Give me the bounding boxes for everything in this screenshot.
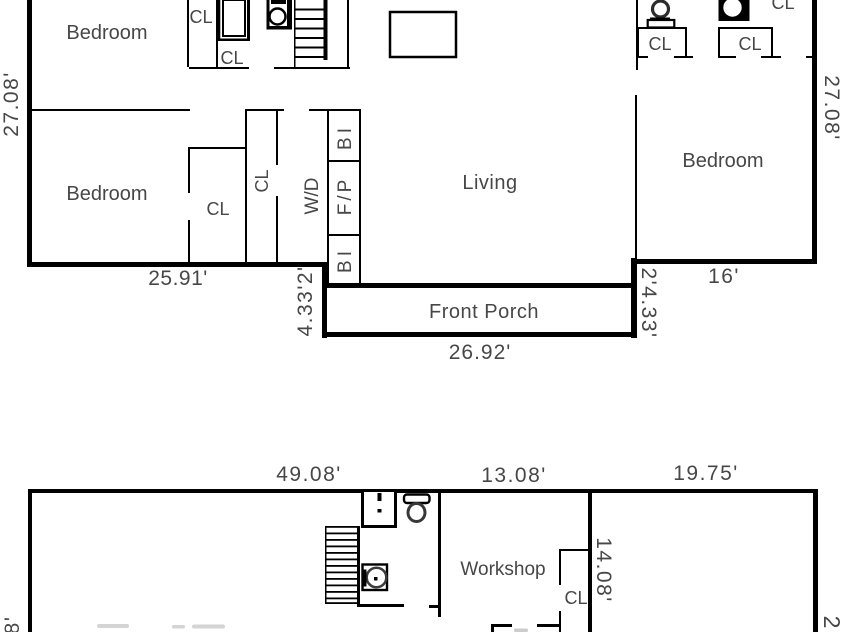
svg-text:Workshop: Workshop (460, 559, 545, 580)
svg-text:CL: CL (771, 0, 794, 13)
svg-text:Bedroom: Bedroom (66, 183, 147, 205)
svg-text:Bedroom: Bedroom (682, 150, 763, 172)
svg-text:BI: BI (335, 124, 356, 150)
svg-text:CL: CL (648, 34, 671, 54)
svg-text:8': 8' (1, 616, 24, 632)
svg-text:CL: CL (564, 588, 587, 608)
svg-text:Living: Living (462, 172, 517, 194)
svg-text:W/D: W/D (302, 178, 323, 215)
svg-text:49.08': 49.08' (276, 463, 342, 486)
svg-text:4.33'2': 4.33'2' (294, 265, 317, 336)
svg-text:26.92': 26.92' (449, 341, 512, 364)
svg-text:2'4.33': 2'4.33' (637, 267, 660, 338)
svg-text:25.91': 25.91' (148, 267, 208, 290)
svg-text:27.08': 27.08' (820, 75, 843, 141)
svg-text:CL: CL (252, 169, 272, 192)
svg-text:27.08': 27.08' (0, 71, 23, 137)
svg-text:CL: CL (738, 34, 761, 54)
svg-text:CL: CL (220, 48, 243, 68)
svg-text:2: 2 (819, 616, 843, 629)
svg-text:16': 16' (708, 265, 740, 288)
svg-text:13.08': 13.08' (481, 464, 547, 487)
svg-text:CL: CL (206, 199, 229, 219)
svg-text:Front Porch: Front Porch (429, 301, 539, 323)
svg-text:F/P: F/P (335, 177, 356, 216)
svg-text:Bedroom: Bedroom (66, 22, 147, 44)
svg-text:CL: CL (189, 7, 212, 27)
svg-text:14.08': 14.08' (592, 537, 615, 603)
svg-text:19.75': 19.75' (673, 462, 739, 485)
svg-text:BI: BI (335, 247, 356, 273)
